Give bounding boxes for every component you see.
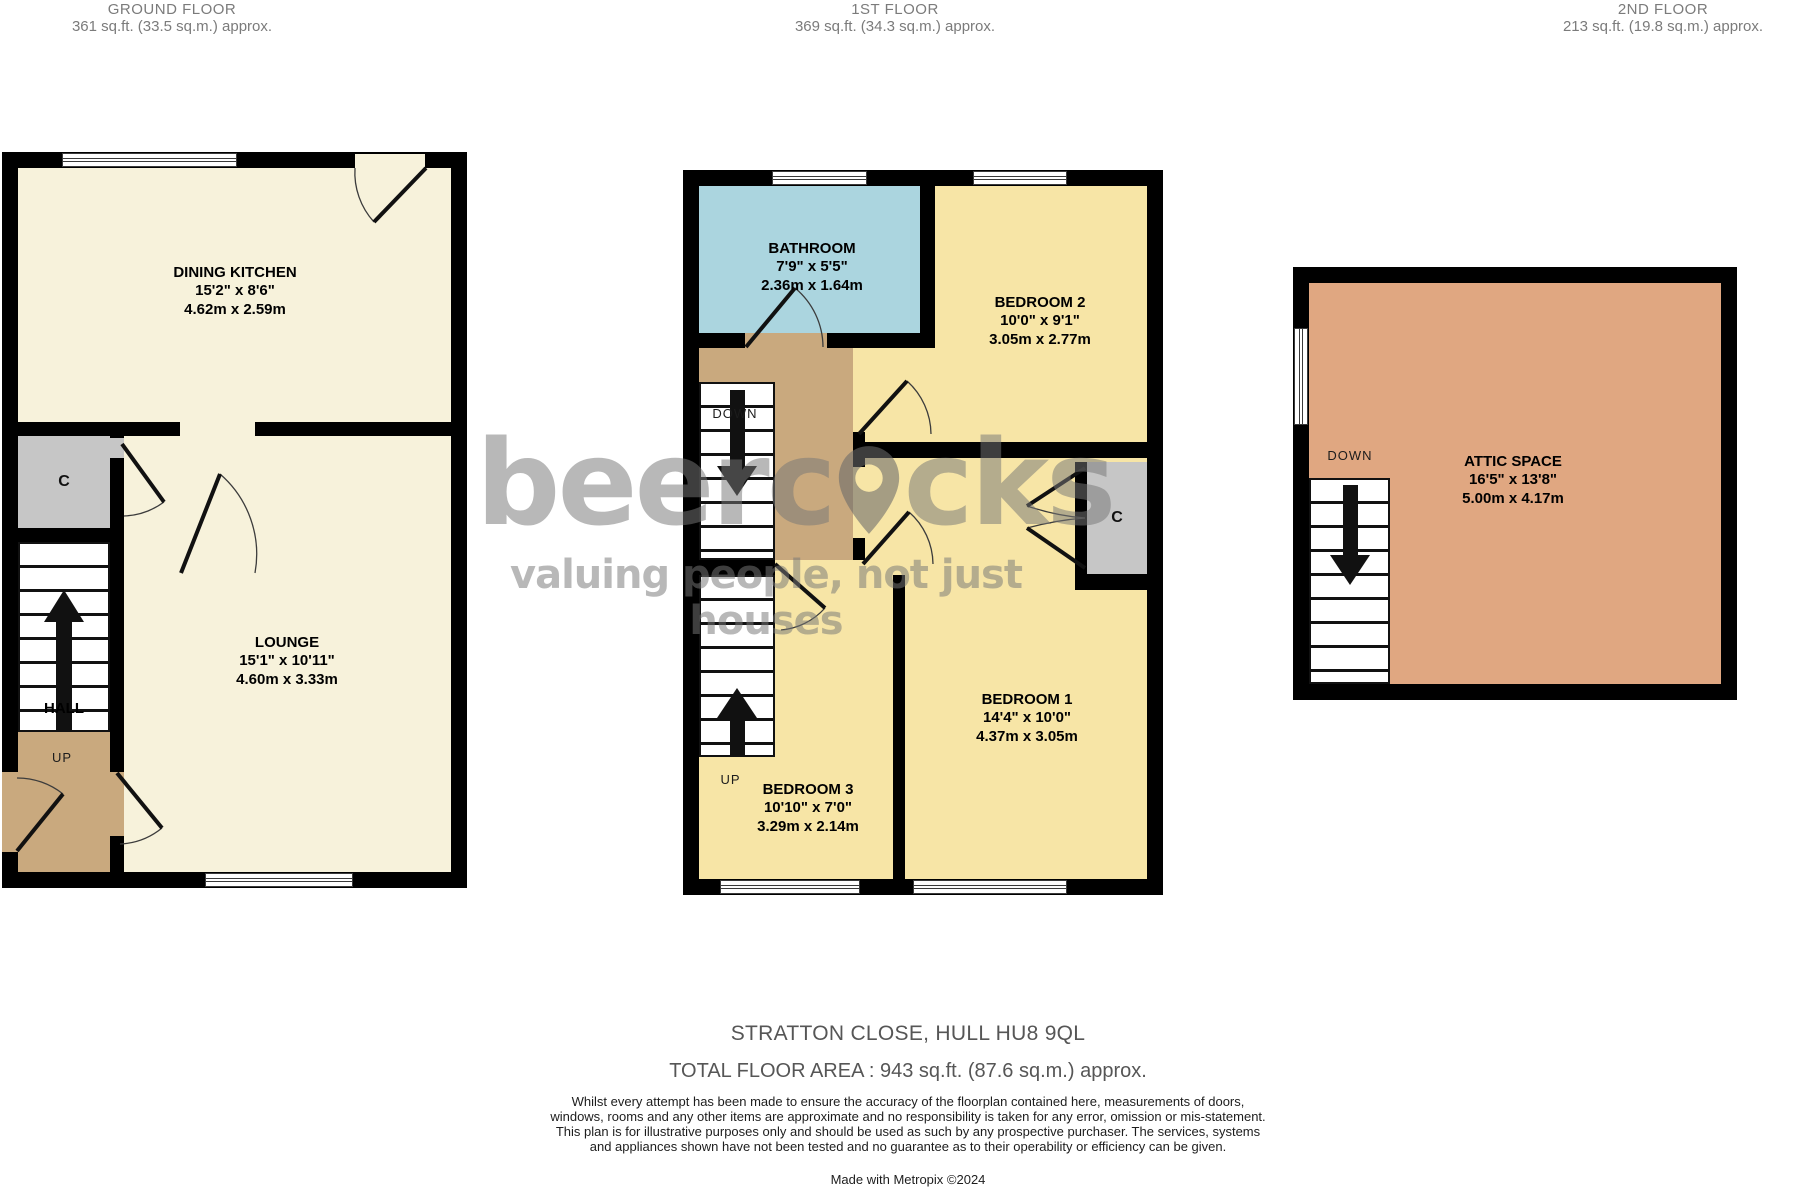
label-up-first: UP [693,772,768,787]
label-bathroom: BATHROOM 7'9" x 5'5" 2.36m x 1.64m [712,240,912,295]
door-kitchen-rear-icon [352,166,432,228]
door-cupboard-first-icon [1019,464,1089,572]
first-floor-title: 1ST FLOOR [745,2,1045,19]
total-floor-area: TOTAL FLOOR AREA : 943 sq.ft. (87.6 sq.m… [0,1060,1816,1083]
ground-floor-title: GROUND FLOOR [22,2,322,19]
window-bedroom1 [913,880,1067,894]
bedroom1-name: BEDROOM 1 [927,691,1127,709]
door-bedroom3-icon [771,560,843,632]
bathroom-metric: 2.36m x 1.64m [712,277,912,295]
door-kitchen-lounge-icon [178,452,258,576]
opening-kitchen-lounge [180,422,255,436]
label-cupboard-first: C [1087,462,1147,574]
window-bedroom3 [720,880,860,894]
label-bedroom2: BEDROOM 2 10'0" x 9'1" 3.05m x 2.77m [940,294,1140,349]
up-arrow-icon-first [717,688,757,718]
bedroom3-imperial: 10'10" x 7'0" [708,799,908,817]
door-bedroom2-icon [855,366,931,438]
up-arrow-icon [44,590,84,622]
bedroom2-metric: 3.05m x 2.77m [940,331,1140,349]
door-front-icon [14,770,70,854]
window-attic [1294,328,1308,425]
label-lounge: LOUNGE 15'1" x 10'11" 4.60m x 3.33m [157,634,417,689]
label-dining-kitchen: DINING KITCHEN 15'2" x 8'6" 4.62m x 2.59… [105,264,365,319]
second-floor-area: 213 sq.ft. (19.8 sq.m.) approx. [1513,19,1813,36]
credit-line: Made with Metropix ©2024 [0,1172,1816,1187]
window-dining-kitchen [62,153,237,167]
bedroom2-name: BEDROOM 2 [940,294,1140,312]
lounge-imperial: 15'1" x 10'11" [157,652,417,670]
first-floor-header: 1ST FLOOR 369 sq.ft. (34.3 sq.m.) approx… [745,2,1045,35]
label-down-second: DOWN [1308,448,1392,463]
bathroom-name: BATHROOM [712,240,912,258]
down-arrow-shaft [730,390,745,466]
bedroom2-imperial: 10'0" x 9'1" [940,312,1140,330]
door-cupboard-ground-icon [118,440,170,520]
lounge-metric: 4.60m x 3.33m [157,671,417,689]
label-bedroom3: BEDROOM 3 10'10" x 7'0" 3.29m x 2.14m [708,781,908,836]
bathroom-imperial: 7'9" x 5'5" [712,258,912,276]
down-arrow-shaft-second [1343,485,1358,555]
down-arrow-icon-second [1330,555,1370,585]
second-floor-plan: DOWN ATTIC SPACE 16'5" x 13'8" 5.00m x 4… [1293,267,1737,700]
second-floor-title: 2ND FLOOR [1513,2,1813,19]
door-bedroom1-icon [859,490,937,568]
bedroom1-imperial: 14'4" x 10'0" [927,709,1127,727]
second-floor-header: 2ND FLOOR 213 sq.ft. (19.8 sq.m.) approx… [1513,2,1813,35]
lounge-name: LOUNGE [157,634,417,652]
label-attic: ATTIC SPACE 16'5" x 13'8" 5.00m x 4.17m [1413,453,1613,508]
label-cupboard-ground: C [18,436,110,528]
attic-imperial: 16'5" x 13'8" [1413,471,1613,489]
bedroom3-metric: 3.29m x 2.14m [708,818,908,836]
ground-floor-plan: DINING KITCHEN 15'2" x 8'6" 4.62m x 2.59… [2,152,467,888]
first-floor-area: 369 sq.ft. (34.3 sq.m.) approx. [745,19,1045,36]
ground-floor-area: 361 sq.ft. (33.5 sq.m.) approx. [22,19,322,36]
label-bedroom1: BEDROOM 1 14'4" x 10'0" 4.37m x 3.05m [927,691,1127,746]
bedroom1-metric: 4.37m x 3.05m [927,728,1127,746]
dining-kitchen-imperial: 15'2" x 8'6" [105,282,365,300]
cupboard-first-wall-bottom [1075,574,1147,590]
window-bedroom2 [973,171,1067,185]
down-arrow-icon [717,466,757,496]
ground-floor-header: GROUND FLOOR 361 sq.ft. (33.5 sq.m.) app… [22,2,322,35]
disclaimer-text: Whilst every attempt has been made to en… [550,1094,1266,1154]
dining-kitchen-name: DINING KITCHEN [105,264,365,282]
property-address: STRATTON CLOSE, HULL HU8 9QL [0,1022,1816,1046]
up-arrow-shaft-first [730,716,745,755]
label-hall: HALL [22,700,106,718]
dining-kitchen-metric: 4.62m x 2.59m [105,301,365,319]
attic-metric: 5.00m x 4.17m [1413,490,1613,508]
label-down-first: DOWN [695,406,775,421]
window-lounge [205,873,353,887]
door-hall-lounge-icon [114,770,170,846]
attic-name: ATTIC SPACE [1413,453,1613,471]
first-floor-plan: BATHROOM 7'9" x 5'5" 2.36m x 1.64m BEDRO… [683,170,1163,895]
label-up-ground: UP [22,750,102,765]
window-bathroom [772,171,867,185]
floorplan-page: GROUND FLOOR 361 sq.ft. (33.5 sq.m.) app… [0,0,1816,1200]
